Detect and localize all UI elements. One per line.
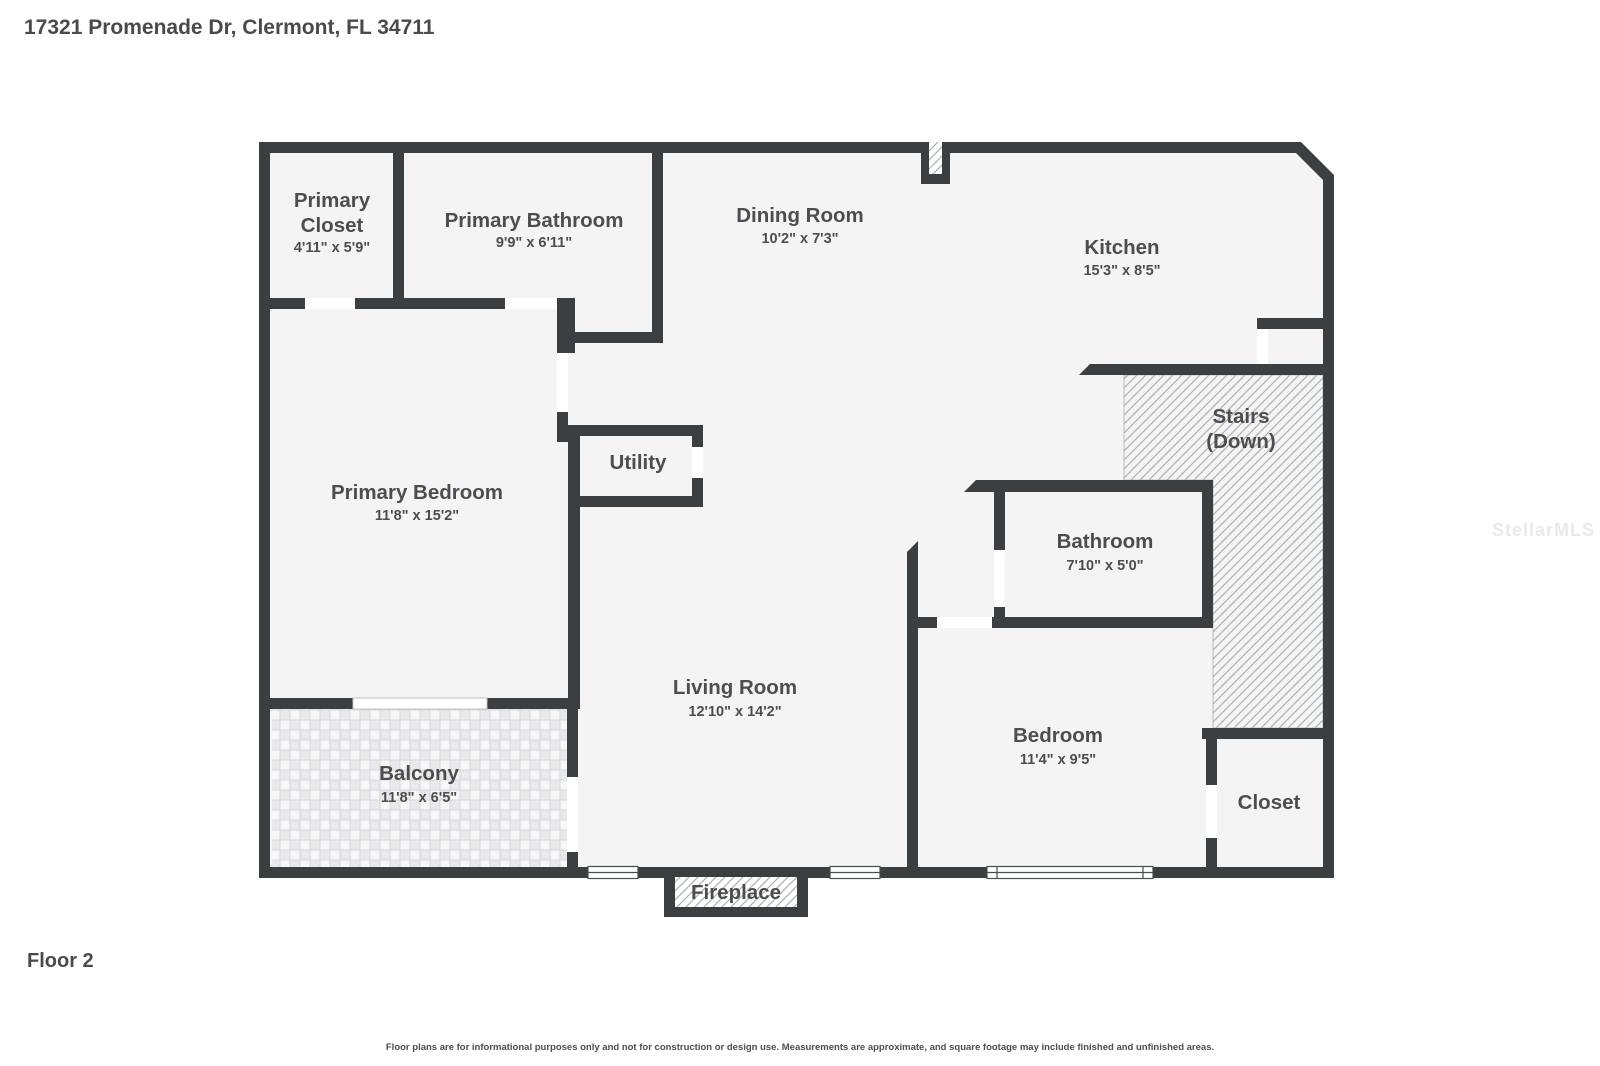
wall-segment [568,436,580,709]
wall-segment [1202,480,1213,628]
wall-segment [259,298,305,309]
wall-segment [355,298,505,309]
floor-plan-svg: 17321 Promenade Dr, Clermont, FL 34711 F… [0,0,1600,1066]
wall-segment [907,617,937,628]
sliding-door-opening [353,698,487,709]
wall-segment [1206,838,1217,867]
window [588,867,638,879]
room-label-primary-bathroom: Primary Bathroom [445,209,624,232]
wall-segment [487,698,578,709]
floor-number-label: Floor 2 [27,950,94,972]
wall-segment [994,492,1005,550]
wall-segment [568,425,703,436]
wall-segment [567,852,578,878]
room-label-kitchen: Kitchen [1084,236,1159,259]
room-label-balcony: Balcony [379,762,459,785]
room-label-utility: Utility [610,451,668,474]
room-dims-dining-room: 10'2" x 7'3" [761,231,838,247]
wall-segment [692,425,703,447]
room-label-primary-closet-line2: Closet [301,214,364,237]
chimney [921,142,950,184]
door-opening [994,550,1005,607]
wall-segment [1206,739,1217,785]
wall-segment [907,541,918,878]
room-label-bedroom: Bedroom [1013,724,1103,747]
room-dims-bedroom: 11'4" x 9'5" [1020,752,1096,768]
window [830,867,880,879]
door-opening [505,298,557,309]
wall-segment [692,478,703,507]
room-label-stairs-line2: (Down) [1206,430,1275,453]
door-opening [1206,785,1217,838]
wall-segment [557,298,575,353]
disclaimer-text: Floor plans are for informational purpos… [386,1042,1214,1053]
room-dims-living-room: 12'10" x 14'2" [688,704,781,720]
room-dims-primary-bedroom: 11'8" x 15'2" [375,508,459,524]
room-label-primary-bedroom: Primary Bedroom [331,481,503,504]
door-opening [937,617,992,628]
floor-plan-page: 17321 Promenade Dr, Clermont, FL 34711 F… [0,0,1600,1066]
wall-segment [1257,318,1330,329]
door-opening [305,298,355,309]
wall-segment [557,412,568,442]
wall-segment [565,332,663,343]
room-dims-bathroom: 7'10" x 5'0" [1066,558,1143,574]
wall-segment [652,142,663,343]
wall-segment [259,698,353,709]
room-dims-balcony: 11'8" x 6'5" [381,790,457,806]
wall-segment [1202,728,1330,739]
watermark-stellar-mls: StellarMLS [1492,520,1595,540]
wall-segment [992,617,1208,628]
door-opening [567,777,578,852]
window [987,867,1153,879]
door-opening [1257,329,1268,364]
door-opening [557,353,568,412]
door-opening [692,447,703,478]
page-title: 17321 Promenade Dr, Clermont, FL 34711 [24,16,435,39]
wall-segment [964,480,1213,492]
wall-segment [568,496,703,507]
room-dims-primary-closet: 4'11" x 5'9" [294,240,370,256]
room-label-living-room: Living Room [673,676,797,699]
wall-segment [1079,364,1330,375]
room-label-stairs: Stairs [1213,405,1270,428]
balcony-deck-pattern [272,709,567,867]
wall-segment [994,607,1005,628]
room-dims-primary-bathroom: 9'9" x 6'11" [496,235,572,251]
room-label-fireplace: Fireplace [691,881,781,904]
room-label-closet: Closet [1238,791,1301,814]
wall-segment [567,709,578,777]
room-label-bathroom: Bathroom [1057,530,1154,553]
room-label-primary-closet: Primary [294,189,371,212]
room-dims-kitchen: 15'3" x 8'5" [1083,263,1160,279]
room-label-dining-room: Dining Room [736,204,864,227]
wall-segment [393,153,404,309]
